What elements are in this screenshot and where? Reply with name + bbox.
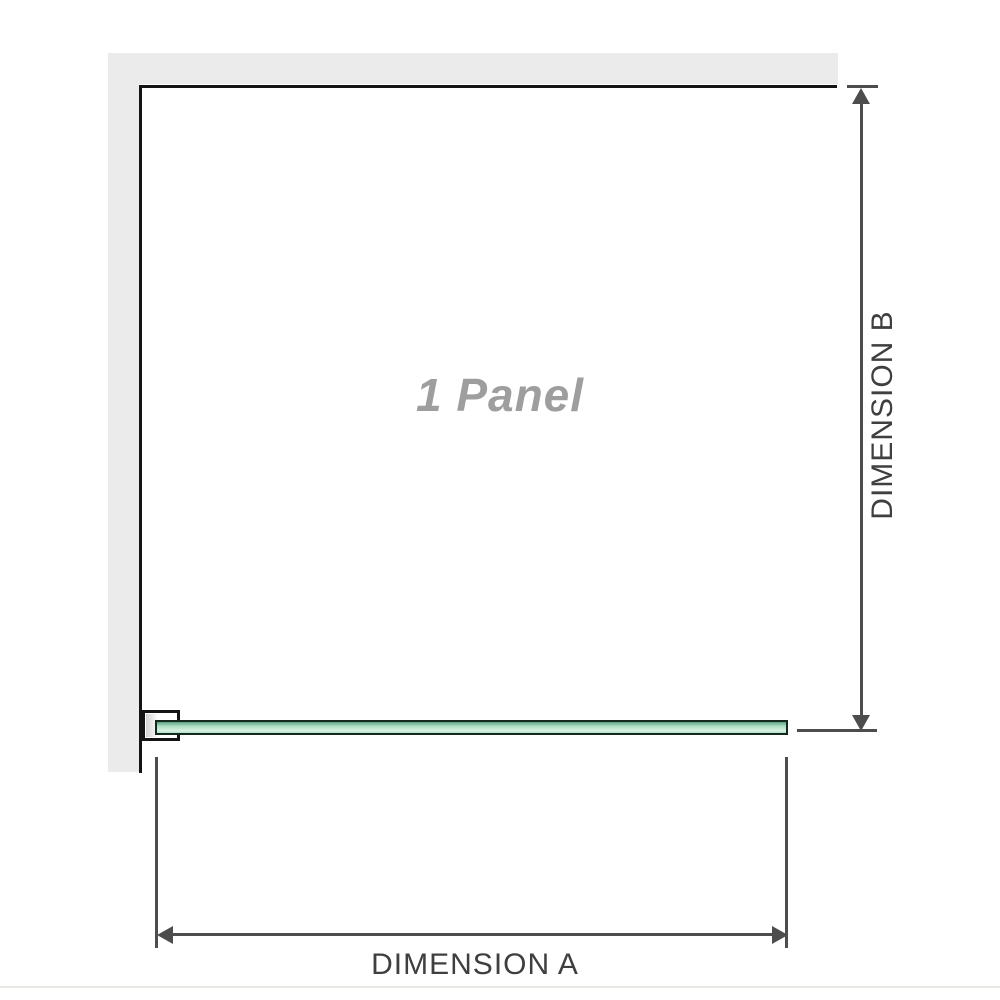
arrow-right-icon [772,926,788,944]
panel-name-label: 1 Panel [350,368,650,422]
glass-panel [155,720,788,735]
room-outline-top [139,85,837,88]
arrow-down-icon [852,715,870,731]
dimension-b-line [860,96,863,723]
dimension-a-line [165,933,783,936]
wall-left [108,53,139,772]
arrow-left-icon [157,926,173,944]
wall-top [108,53,838,84]
arrow-up-icon [852,88,870,104]
dimension-a-label: DIMENSION A [325,948,625,982]
panel-dimension-diagram: 1 Panel DIMENSION B DIMENSION A [0,0,1000,1000]
dimension-a-extension-left [155,757,158,948]
dimension-b-label: DIMENSION B [868,285,898,545]
page-baseline [0,986,1000,988]
room-outline-left [139,85,142,773]
dimension-a-extension-right [785,757,788,948]
